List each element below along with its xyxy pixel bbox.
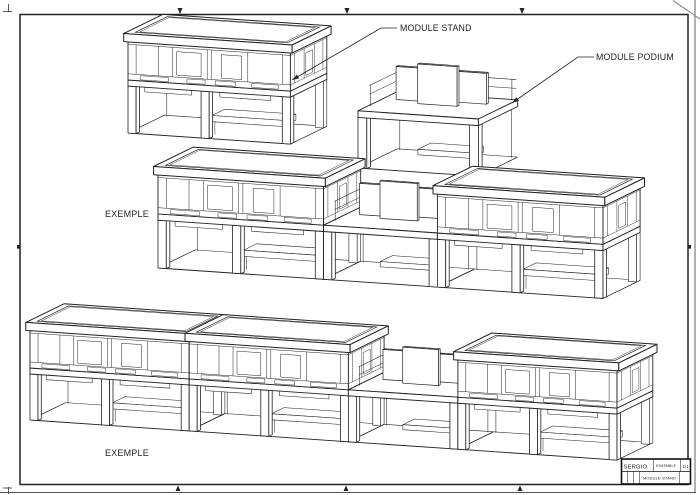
title-block-scale: 1/1 [683,464,690,469]
module-podium-label: MODULE PODIUM [596,52,674,62]
title-block-project: SERGIO [624,465,648,471]
exemple-2-label: EXEMPLE [105,448,149,458]
scanned-drawing-sheet: MODULE STAND MODULE PODIUM EXEMPLE EXEMP… [0,0,700,495]
title-block-detail: ENSEMBLE [656,464,677,468]
module-stand-label: MODULE STAND [400,23,472,33]
exemple-1-label: EXEMPLE [105,209,149,219]
title-block: SERGIO ENSEMBLE 1/1 MODULE STAND [622,459,691,484]
title-block-title: MODULE STAND [643,476,676,481]
cad-sheet-svg: MODULE STAND MODULE PODIUM EXEMPLE EXEMP… [0,0,700,495]
